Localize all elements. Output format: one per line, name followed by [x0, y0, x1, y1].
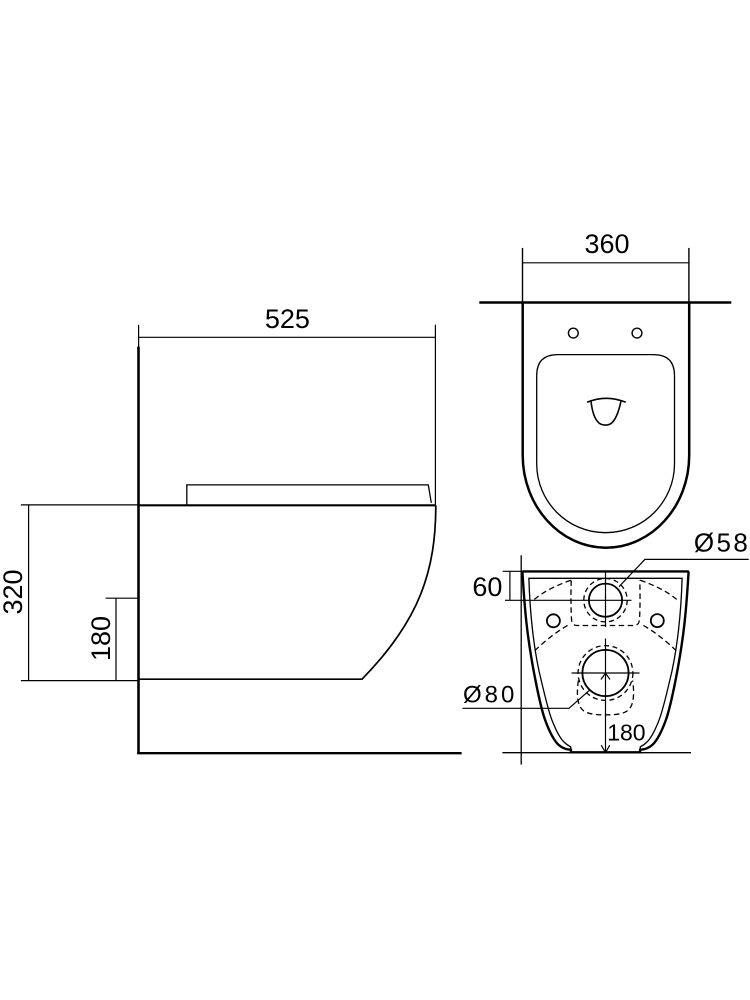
svg-text:Ø58: Ø58 — [694, 528, 750, 558]
svg-text:320: 320 — [0, 569, 28, 614]
svg-text:60: 60 — [472, 572, 502, 602]
svg-text:180: 180 — [86, 616, 116, 661]
svg-text:180: 180 — [607, 720, 645, 746]
svg-text:360: 360 — [584, 229, 629, 259]
svg-text:Ø80: Ø80 — [463, 681, 517, 708]
svg-text:525: 525 — [265, 304, 310, 334]
